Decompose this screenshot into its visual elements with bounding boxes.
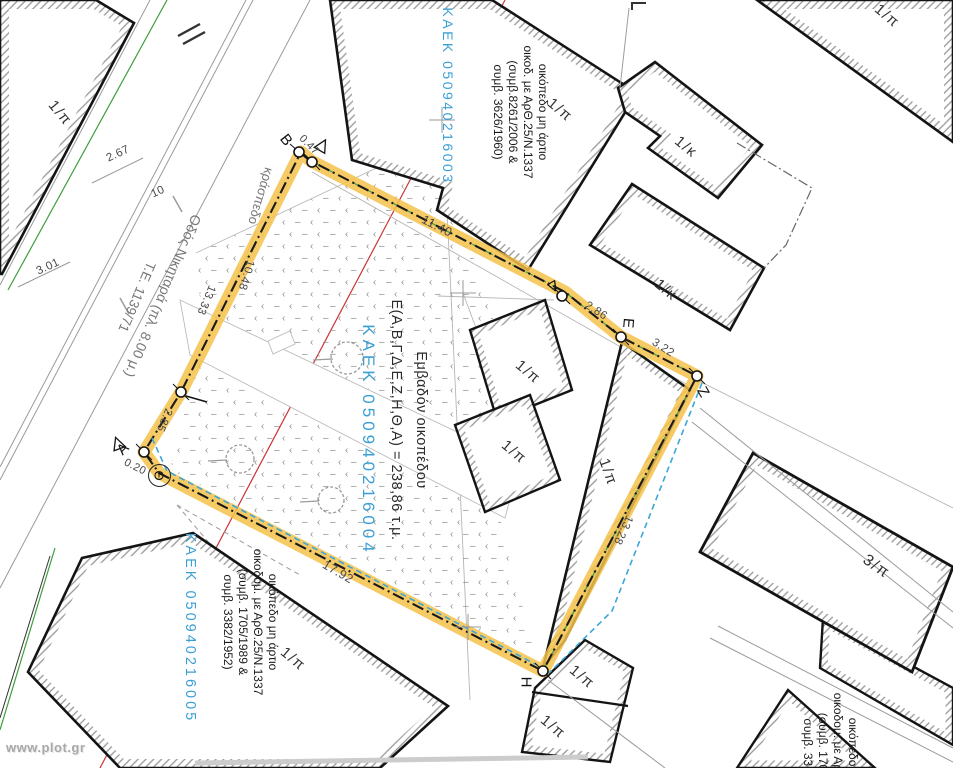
vertex-theta-glyph: Θ <box>152 470 167 480</box>
note-top-line4: συμβ. 3626/1960) <box>490 45 505 178</box>
parcel-area-block: Εμβαδόν οικοπέδου Ε(Α,Β,Γ,Δ,Ε,Ζ,Η,Θ,Α) =… <box>383 300 433 541</box>
note-br-line3: (συμβ. 1705/1989 & <box>815 693 830 768</box>
parcel-note-bottom-right: οικόπεδο μη άρτιο οικοδομ. με ΑρΘ.25/Ν.1… <box>800 693 860 768</box>
note-top-line3: (συμβ.8261/2006 & <box>505 45 520 178</box>
note-bottom-line4: συμβ. 3382/1952) <box>220 549 235 696</box>
parcel-area-title: Εμβαδόν οικοπέδου <box>408 300 433 541</box>
note-br-line4: συμβ. 3382/1952) <box>800 693 815 768</box>
vertex-label-theta: Θ <box>148 464 171 487</box>
note-bottom-line2: οικοδομ. με ΑρΘ.25/Ν.1337 <box>250 549 265 696</box>
note-top-line2: οικοδ. με ΑρΘ.25/Ν.1337 <box>520 45 535 178</box>
kaek-code-bottom: ΚΑΕΚ 050940216005 <box>182 533 198 724</box>
vertex-label-e: Ε <box>619 317 637 328</box>
parcel-area-value: Ε(Α,Β,Γ,Δ,Ε,Ζ,Η,Θ,Α) = 238,86 τ.μ. <box>383 300 408 541</box>
note-top-line1: οικόπεδο μη άρτιο <box>535 45 550 178</box>
vertex-label-h: Η <box>518 677 535 688</box>
note-bottom-line1: οικόπεδο μη άρτιο <box>265 549 280 696</box>
note-bottom-line3: (συμβ. 1705/1989 & <box>235 549 250 696</box>
cadastral-plan: ‹ – ‹ – <box>0 0 953 768</box>
kaek-code-top: ΚΑΕΚ 050940216003 <box>440 7 456 184</box>
note-br-line1: οικόπεδο μη άρτιο <box>845 693 860 768</box>
watermark: www.plot.gr <box>6 740 85 755</box>
kaek-code-center: ΚΑΕΚ 050940216004 <box>358 324 378 556</box>
parcel-note-bottom: οικόπεδο μη άρτιο οικοδομ. με ΑρΘ.25/Ν.1… <box>220 549 280 696</box>
note-br-line2: οικοδομ. με ΑρΘ.25/Ν.1337 <box>830 693 845 768</box>
plan-drawing: ‹ – ‹ – <box>0 0 953 768</box>
parcel-note-top: οικόπεδο μη άρτιο οικοδ. με ΑρΘ.25/Ν.133… <box>490 45 550 178</box>
black-street-edge <box>0 556 50 718</box>
